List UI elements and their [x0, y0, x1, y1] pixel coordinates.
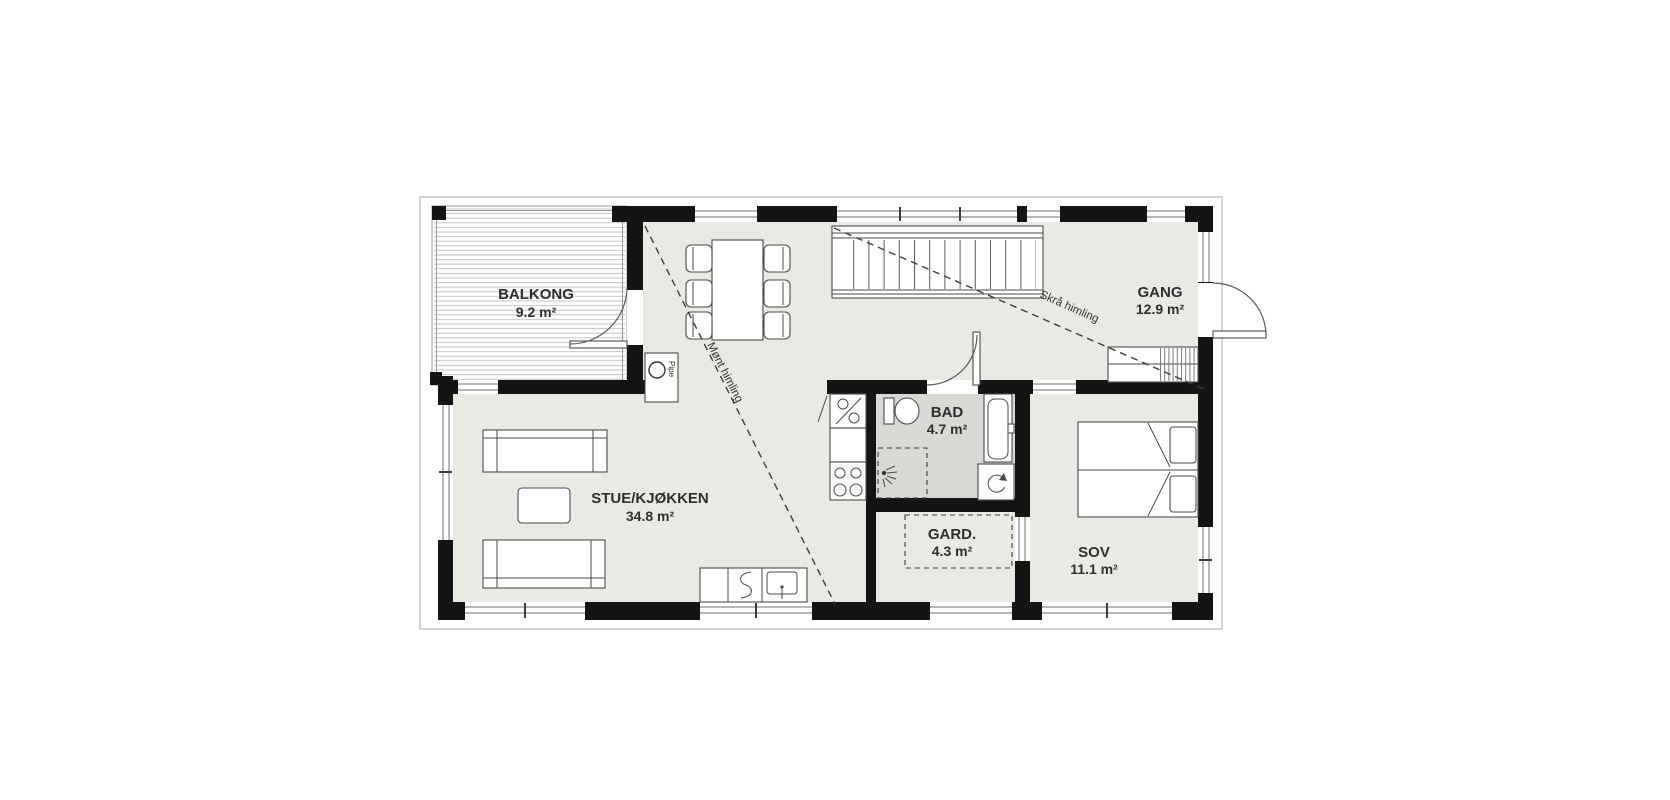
stair-treads: [839, 240, 1036, 289]
chimney: Pipe: [645, 353, 678, 402]
window: [1027, 206, 1060, 222]
closet-opening: [1015, 512, 1030, 566]
window: [1198, 527, 1213, 593]
window: [438, 405, 453, 540]
pillow: [1170, 427, 1196, 463]
washing-machine-icon: [978, 464, 1014, 500]
room-label-stue: STUE/KJØKKEN: [591, 490, 709, 507]
window: [465, 602, 585, 620]
room-label-gang: GANG: [1138, 284, 1183, 301]
room-label-gard: GARD.: [928, 526, 976, 543]
chimney-icon: [649, 362, 665, 378]
lower-counter: [700, 568, 807, 602]
window: [837, 206, 1017, 222]
coffee-table: [518, 488, 570, 523]
dining-set: [686, 240, 790, 340]
room-label-bad: BAD: [931, 404, 964, 421]
kitchen-counter: [830, 428, 866, 462]
staircase: [832, 226, 1043, 298]
window: [700, 602, 812, 620]
room-area-gang: 12.9 m²: [1136, 301, 1185, 317]
room-area-stue: 34.8 m²: [626, 508, 675, 524]
hall-wardrobe: [1108, 347, 1198, 382]
room-label-balkong: BALKONG: [498, 286, 574, 303]
pillow: [1170, 476, 1196, 512]
bed: [1078, 422, 1198, 517]
room-area-sov: 11.1 m²: [1070, 561, 1118, 577]
window: [1042, 602, 1172, 620]
window: [695, 206, 757, 222]
washbasin-icon: [984, 394, 1014, 462]
stove: [830, 462, 866, 500]
bedroom-door-opening: [1029, 380, 1080, 394]
window: [1147, 206, 1185, 222]
window: [458, 380, 498, 394]
sofa: [483, 430, 607, 472]
window: [1198, 232, 1213, 282]
floor-plan-drawing: Pipe: [0, 0, 1670, 800]
room-area-balkong: 9.2 m²: [516, 304, 557, 320]
dining-table: [712, 240, 763, 340]
entry-door: [1213, 283, 1266, 338]
entry-door-opening: [1198, 283, 1213, 337]
room-area-bad: 4.7 m²: [927, 421, 968, 437]
sofa: [483, 540, 605, 588]
room-area-gard: 4.3 m²: [932, 543, 973, 559]
chimney-label: Pipe: [667, 361, 676, 378]
room-label-sov: SOV: [1078, 544, 1110, 561]
balcony-door-opening: [627, 290, 643, 345]
floor-plan: Pipe: [0, 0, 1670, 800]
window: [930, 602, 1012, 620]
toilet-icon: [884, 398, 919, 424]
bath-door-opening: [927, 380, 978, 394]
balcony-post: [432, 206, 446, 220]
